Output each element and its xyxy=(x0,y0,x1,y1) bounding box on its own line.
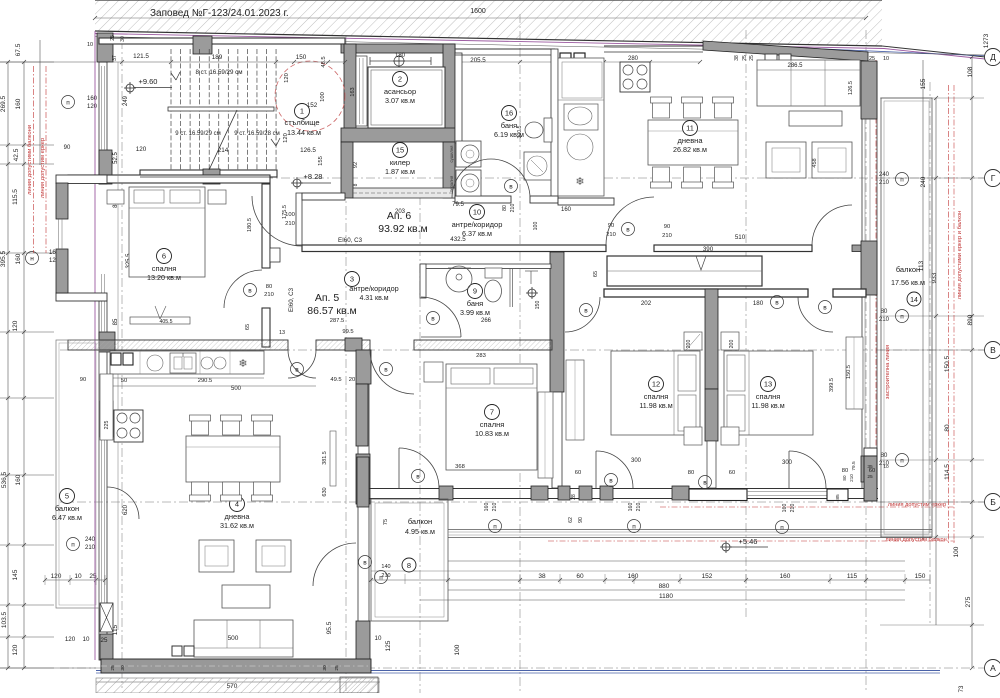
svg-text:150.5: 150.5 xyxy=(846,365,852,379)
svg-text:10: 10 xyxy=(83,636,90,643)
svg-text:115: 115 xyxy=(847,573,858,580)
svg-text:в: в xyxy=(626,226,630,233)
svg-text:90: 90 xyxy=(664,224,670,230)
svg-text:в: в xyxy=(823,304,827,311)
svg-text:80: 80 xyxy=(502,205,508,211)
svg-text:266: 266 xyxy=(481,318,492,324)
svg-text:152: 152 xyxy=(702,573,713,580)
svg-text:100: 100 xyxy=(533,222,539,231)
svg-text:75: 75 xyxy=(383,519,389,525)
svg-text:25: 25 xyxy=(867,474,873,480)
svg-text:79.5: 79.5 xyxy=(851,461,857,471)
svg-text:90: 90 xyxy=(80,377,86,383)
svg-text:30: 30 xyxy=(120,36,126,42)
svg-text:в: в xyxy=(295,366,299,373)
svg-text:в: в xyxy=(416,473,420,480)
svg-text:120: 120 xyxy=(65,636,76,643)
svg-text:80: 80 xyxy=(944,424,951,432)
svg-text:240: 240 xyxy=(920,176,927,187)
svg-text:155: 155 xyxy=(318,156,324,166)
svg-text:120: 120 xyxy=(284,73,290,83)
svg-text:дневна: дневна xyxy=(678,136,704,145)
svg-text:42.5: 42.5 xyxy=(13,148,20,161)
svg-text:Д: Д xyxy=(990,52,996,62)
svg-text:150: 150 xyxy=(915,573,926,580)
svg-text:п: п xyxy=(780,524,784,531)
svg-text:50: 50 xyxy=(121,378,127,384)
svg-text:в: в xyxy=(609,477,613,484)
svg-text:25: 25 xyxy=(101,637,108,644)
svg-text:3: 3 xyxy=(350,275,354,284)
svg-text:120: 120 xyxy=(12,320,19,331)
svg-text:в: в xyxy=(584,307,588,314)
svg-text:5: 5 xyxy=(65,492,69,501)
svg-text:9 ст. 16.59/28 см: 9 ст. 16.59/28 см xyxy=(234,131,280,137)
svg-text:210: 210 xyxy=(492,503,498,512)
svg-text:3.99 кв.м: 3.99 кв.м xyxy=(460,308,490,317)
svg-text:4.31 кв.м: 4.31 кв.м xyxy=(359,295,388,302)
svg-text:линия допустим балкон: линия допустим балкон xyxy=(885,537,946,543)
svg-text:п: п xyxy=(379,574,383,581)
svg-text:8: 8 xyxy=(353,183,359,186)
svg-text:210: 210 xyxy=(285,221,295,227)
svg-text:11.98 кв.м: 11.98 кв.м xyxy=(751,401,784,410)
svg-text:880: 880 xyxy=(659,583,670,590)
svg-text:спалня: спалня xyxy=(644,392,669,401)
svg-text:60: 60 xyxy=(575,470,581,476)
svg-text:линия допустими еркер и балкон: линия допустими еркер и балкон xyxy=(957,211,963,300)
svg-text:+5.46: +5.46 xyxy=(739,537,758,546)
svg-text:13: 13 xyxy=(279,330,285,336)
svg-text:13.44 кв.м: 13.44 кв.м xyxy=(287,128,321,137)
svg-text:49.5: 49.5 xyxy=(330,377,341,383)
svg-text:240: 240 xyxy=(85,537,96,543)
svg-text:Заповед №Г-123/24.01.2023 г.: Заповед №Г-123/24.01.2023 г. xyxy=(150,8,289,19)
svg-text:202: 202 xyxy=(641,300,652,307)
svg-text:25: 25 xyxy=(742,55,748,61)
svg-text:67.5: 67.5 xyxy=(15,43,22,56)
svg-text:163: 163 xyxy=(350,87,356,96)
svg-text:395.5: 395.5 xyxy=(0,250,7,267)
svg-text:7: 7 xyxy=(490,408,494,417)
svg-text:120: 120 xyxy=(136,146,147,153)
svg-text:536.5: 536.5 xyxy=(1,471,8,488)
svg-text:11.98 кв.м: 11.98 кв.м xyxy=(639,401,672,410)
svg-text:в: в xyxy=(775,299,779,306)
svg-text:ЕІ60, С3: ЕІ60, С3 xyxy=(338,237,363,244)
svg-text:405.5: 405.5 xyxy=(160,319,173,325)
svg-text:890: 890 xyxy=(967,314,974,325)
svg-text:❄: ❄ xyxy=(238,358,247,370)
svg-text:спалня: спалня xyxy=(480,420,505,429)
svg-text:в: в xyxy=(363,559,367,566)
svg-text:10: 10 xyxy=(87,42,93,48)
svg-text:1.87 кв.м: 1.87 кв.м xyxy=(385,167,415,176)
svg-text:300.5: 300.5 xyxy=(517,125,523,138)
svg-text:80: 80 xyxy=(881,453,888,459)
svg-text:210: 210 xyxy=(849,474,854,482)
svg-text:390: 390 xyxy=(703,246,714,253)
svg-text:Ап. 6: Ап. 6 xyxy=(387,210,412,222)
svg-text:линия допустим еркер: линия допустим еркер xyxy=(888,502,946,508)
svg-text:189: 189 xyxy=(212,54,223,61)
svg-text:200: 200 xyxy=(686,340,692,349)
svg-text:432.5: 432.5 xyxy=(450,236,466,243)
svg-text:126.5: 126.5 xyxy=(300,147,316,154)
svg-text:160: 160 xyxy=(782,504,788,513)
svg-text:210: 210 xyxy=(879,180,890,186)
svg-text:95.5: 95.5 xyxy=(326,621,333,634)
svg-text:14: 14 xyxy=(910,297,918,304)
svg-text:❄: ❄ xyxy=(575,176,584,188)
svg-text:п: п xyxy=(900,313,904,320)
svg-text:11: 11 xyxy=(686,124,694,133)
svg-text:80: 80 xyxy=(881,309,888,315)
svg-text:37: 37 xyxy=(112,55,118,61)
svg-text:52.5: 52.5 xyxy=(113,152,119,164)
svg-text:86.57 кв.м: 86.57 кв.м xyxy=(307,305,357,317)
svg-text:80: 80 xyxy=(688,470,694,476)
svg-text:антре/коридор: антре/коридор xyxy=(349,284,398,293)
svg-text:6.37 кв.м: 6.37 кв.м xyxy=(462,229,492,238)
svg-text:10: 10 xyxy=(883,56,889,62)
svg-text:150.5: 150.5 xyxy=(944,355,951,372)
svg-text:10.83 кв.м: 10.83 кв.м xyxy=(475,429,509,438)
svg-text:8: 8 xyxy=(407,561,411,570)
svg-text:500: 500 xyxy=(228,635,239,642)
svg-text:28: 28 xyxy=(571,494,577,500)
svg-text:210: 210 xyxy=(264,292,274,298)
svg-text:п: п xyxy=(900,457,904,464)
svg-text:180: 180 xyxy=(753,300,764,307)
svg-text:10: 10 xyxy=(473,208,481,217)
svg-text:60: 60 xyxy=(576,573,584,580)
svg-text:150: 150 xyxy=(535,301,541,310)
svg-text:140: 140 xyxy=(381,564,390,570)
svg-text:п: п xyxy=(900,176,904,183)
svg-text:160: 160 xyxy=(484,503,490,512)
svg-text:стълбище: стълбище xyxy=(285,118,320,127)
svg-text:31.62 кв.м: 31.62 кв.м xyxy=(220,521,254,530)
svg-text:399.5: 399.5 xyxy=(829,378,835,392)
svg-text:13.20 кв.м: 13.20 кв.м xyxy=(147,273,181,282)
svg-text:510: 510 xyxy=(735,234,746,241)
svg-text:килер: килер xyxy=(390,158,410,167)
svg-text:160: 160 xyxy=(628,503,634,512)
svg-text:73: 73 xyxy=(959,685,965,692)
svg-text:20: 20 xyxy=(349,377,355,383)
svg-text:65: 65 xyxy=(593,271,599,277)
svg-text:25: 25 xyxy=(110,665,116,671)
svg-text:Г: Г xyxy=(991,173,996,183)
svg-text:баня: баня xyxy=(467,299,484,308)
svg-text:в: в xyxy=(509,183,513,190)
svg-text:линия допустим еркер: линия допустим еркер xyxy=(40,138,46,198)
svg-text:381.5: 381.5 xyxy=(322,451,328,465)
svg-text:90: 90 xyxy=(578,517,584,523)
svg-text:103.5: 103.5 xyxy=(1,611,8,628)
svg-text:210: 210 xyxy=(636,503,642,512)
svg-text:Б: Б xyxy=(990,497,996,507)
svg-text:3.07 кв.м: 3.07 кв.м xyxy=(385,96,415,105)
svg-text:п: п xyxy=(71,541,75,548)
svg-text:линия допустими балкони: линия допустими балкони xyxy=(27,125,33,195)
svg-text:100: 100 xyxy=(953,546,960,557)
svg-text:210: 210 xyxy=(381,573,390,579)
svg-text:160: 160 xyxy=(15,253,22,264)
svg-text:287.5: 287.5 xyxy=(330,318,345,324)
svg-text:280: 280 xyxy=(628,56,639,62)
svg-text:283: 283 xyxy=(476,353,486,359)
svg-text:500: 500 xyxy=(231,386,242,392)
svg-text:асансьор: асансьор xyxy=(384,87,416,96)
svg-text:620: 620 xyxy=(123,504,129,515)
svg-text:38: 38 xyxy=(538,573,546,580)
svg-text:балкон: балкон xyxy=(55,504,79,513)
svg-text:108: 108 xyxy=(967,66,974,77)
svg-text:240: 240 xyxy=(879,172,890,178)
svg-text:1600: 1600 xyxy=(470,8,486,15)
svg-text:+9.60: +9.60 xyxy=(139,77,158,86)
svg-text:99.5: 99.5 xyxy=(342,329,353,335)
svg-text:в: в xyxy=(248,287,252,294)
svg-text:120: 120 xyxy=(87,104,98,110)
svg-text:249: 249 xyxy=(123,95,129,106)
svg-text:В: В xyxy=(990,345,996,355)
svg-text:пералня: пералня xyxy=(449,176,454,192)
svg-text:16: 16 xyxy=(505,109,513,118)
svg-text:26.82 кв.м: 26.82 кв.м xyxy=(673,145,707,154)
svg-text:38: 38 xyxy=(734,55,740,61)
svg-text:60: 60 xyxy=(869,468,875,474)
svg-text:145: 145 xyxy=(12,569,19,580)
svg-text:30: 30 xyxy=(120,665,126,671)
svg-text:120: 120 xyxy=(12,644,19,655)
svg-text:25: 25 xyxy=(110,35,116,41)
svg-text:225: 225 xyxy=(104,421,110,430)
svg-text:290.5: 290.5 xyxy=(198,378,213,384)
svg-text:160: 160 xyxy=(87,96,98,102)
svg-text:25: 25 xyxy=(334,665,340,671)
svg-text:160: 160 xyxy=(780,573,791,580)
svg-text:15: 15 xyxy=(396,146,404,155)
svg-text:1273: 1273 xyxy=(983,33,990,48)
svg-text:100: 100 xyxy=(320,92,326,102)
svg-text:175.5: 175.5 xyxy=(282,205,288,219)
svg-text:30: 30 xyxy=(322,665,328,671)
svg-text:антре/коридор: антре/коридор xyxy=(452,220,503,229)
svg-text:114.5: 114.5 xyxy=(944,464,951,480)
svg-text:210: 210 xyxy=(879,317,890,323)
svg-text:286.5: 286.5 xyxy=(787,63,803,69)
svg-text:160: 160 xyxy=(15,474,22,485)
svg-text:п: п xyxy=(66,99,70,106)
svg-text:630: 630 xyxy=(322,487,328,496)
svg-text:200: 200 xyxy=(729,340,735,349)
svg-text:+8.28: +8.28 xyxy=(304,172,323,181)
svg-text:368: 368 xyxy=(455,464,465,470)
svg-text:10: 10 xyxy=(375,635,382,642)
svg-text:9 ст. 16.59/29 см: 9 ст. 16.59/29 см xyxy=(175,131,221,137)
svg-text:4.95 кв.м: 4.95 кв.м xyxy=(405,527,435,536)
svg-text:126.5: 126.5 xyxy=(848,81,854,95)
svg-text:269.5: 269.5 xyxy=(0,95,7,112)
svg-text:Ап. 5: Ап. 5 xyxy=(315,292,340,304)
svg-text:13: 13 xyxy=(764,380,772,389)
svg-text:155: 155 xyxy=(920,78,927,89)
svg-text:спалня: спалня xyxy=(152,264,177,273)
svg-text:65: 65 xyxy=(245,324,251,330)
svg-text:80: 80 xyxy=(842,468,848,474)
svg-text:210: 210 xyxy=(85,545,96,551)
svg-text:62: 62 xyxy=(568,517,574,523)
svg-text:12: 12 xyxy=(652,380,660,389)
svg-text:180.5: 180.5 xyxy=(247,218,253,232)
svg-text:в: в xyxy=(431,315,435,322)
svg-text:25: 25 xyxy=(749,55,755,61)
svg-text:205.5: 205.5 xyxy=(470,57,486,64)
svg-text:210: 210 xyxy=(790,504,796,513)
svg-text:9: 9 xyxy=(473,287,477,296)
svg-text:1180: 1180 xyxy=(659,593,673,600)
svg-text:10: 10 xyxy=(74,573,82,580)
svg-text:в: в xyxy=(384,366,388,373)
svg-text:баня: баня xyxy=(501,121,518,130)
svg-text:210: 210 xyxy=(510,204,516,213)
svg-text:160: 160 xyxy=(561,207,572,213)
svg-text:300: 300 xyxy=(782,460,793,466)
svg-text:6.47 кв.м: 6.47 кв.м xyxy=(52,513,82,522)
svg-text:115.5: 115.5 xyxy=(12,189,19,205)
svg-text:А: А xyxy=(990,663,996,673)
svg-text:85: 85 xyxy=(835,494,841,500)
svg-text:8 ст. 16.59/29 см: 8 ст. 16.59/29 см xyxy=(196,69,243,76)
svg-text:25: 25 xyxy=(869,56,875,62)
svg-text:6: 6 xyxy=(162,252,166,261)
svg-text:79.5: 79.5 xyxy=(452,202,464,208)
svg-text:в: в xyxy=(703,479,707,486)
svg-text:160: 160 xyxy=(628,573,639,580)
svg-text:92: 92 xyxy=(353,162,359,168)
svg-text:1: 1 xyxy=(300,107,304,116)
svg-text:214: 214 xyxy=(218,147,229,154)
svg-text:275: 275 xyxy=(965,596,972,607)
svg-text:застроителна линия: застроителна линия xyxy=(885,345,891,399)
svg-text:121.5: 121.5 xyxy=(133,53,149,60)
svg-text:дневна: дневна xyxy=(225,512,251,521)
svg-text:балкон: балкон xyxy=(408,517,432,526)
svg-text:100: 100 xyxy=(454,644,461,655)
svg-text:п: п xyxy=(632,523,636,530)
svg-text:80: 80 xyxy=(266,284,272,290)
svg-text:17.56 кв.м: 17.56 кв.м xyxy=(891,278,925,287)
svg-text:85: 85 xyxy=(113,318,119,325)
svg-text:спалня: спалня xyxy=(756,392,781,401)
svg-text:160: 160 xyxy=(15,98,22,109)
svg-text:93.92 кв.м: 93.92 кв.м xyxy=(378,223,428,235)
svg-text:балкон: балкон xyxy=(896,265,920,274)
svg-text:п: п xyxy=(493,523,497,530)
svg-text:90: 90 xyxy=(64,145,71,151)
svg-text:458: 458 xyxy=(812,158,818,167)
svg-text:2: 2 xyxy=(398,75,402,84)
svg-text:60: 60 xyxy=(729,470,735,476)
svg-text:300: 300 xyxy=(631,458,642,464)
svg-text:ЕІ60, С3: ЕІ60, С3 xyxy=(288,287,295,312)
svg-text:210: 210 xyxy=(662,233,672,239)
svg-text:125: 125 xyxy=(385,640,392,651)
svg-text:н: н xyxy=(30,255,34,262)
svg-text:сушилня: сушилня xyxy=(449,146,454,163)
svg-text:150: 150 xyxy=(296,54,307,61)
svg-text:80: 80 xyxy=(842,475,847,481)
